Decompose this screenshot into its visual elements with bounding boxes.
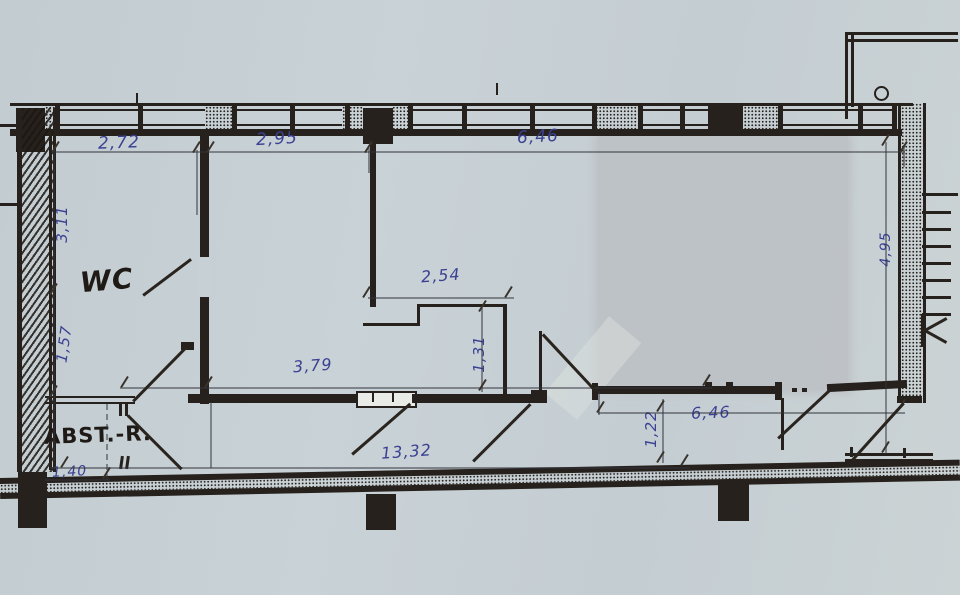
window-segment (780, 109, 895, 126)
dimension-line (598, 412, 905, 414)
window-segment (235, 109, 342, 126)
exterior-pipe-line (851, 33, 854, 107)
door-swing-line (472, 403, 531, 462)
window-segment (58, 109, 205, 126)
wall-dash (802, 388, 807, 392)
dimension-label-bottom-total: 13,32 (380, 440, 432, 462)
bottom-exterior-wall (0, 460, 960, 499)
radiator-tick (922, 245, 951, 248)
circle-mark (874, 86, 889, 101)
mullion-post (345, 104, 350, 134)
dimension-line (53, 151, 55, 461)
mullion-post (462, 104, 467, 134)
threshold-post (850, 447, 853, 457)
top-wall-inner-line (10, 129, 902, 136)
radiator-tick (922, 211, 951, 214)
threshold-post (903, 448, 906, 458)
left-wall-tick (0, 124, 17, 127)
mullion-post (892, 104, 897, 134)
dimension-line (196, 150, 198, 215)
left-wall-inner-face (49, 132, 52, 470)
radiator-tick (922, 313, 951, 316)
mullion-post (55, 104, 60, 134)
wall-stipple (205, 106, 235, 130)
wall-dash (792, 388, 797, 392)
dimension-line (368, 148, 370, 173)
dimension-line (55, 151, 905, 153)
exterior-pipe-line (845, 33, 848, 119)
door-swing-line (132, 346, 187, 402)
mullion-post (708, 104, 713, 134)
dimension-label-mid-width: 2,54 (420, 265, 461, 287)
mullion-post (638, 104, 643, 134)
mid-step-wall (418, 304, 506, 307)
left-wall-tick (0, 203, 17, 206)
door-post (531, 390, 547, 403)
window-segment (410, 109, 595, 126)
concrete-pillar (713, 105, 743, 134)
dimension-line (481, 308, 483, 392)
wall-stipple (740, 106, 780, 130)
concrete-pillar (18, 472, 47, 528)
mullion-post (592, 104, 597, 134)
dimension-label-left-upper: 3,11 (53, 194, 71, 254)
concrete-pillar (363, 108, 393, 144)
exterior-ledge-line (845, 39, 958, 42)
mullion-post (778, 104, 783, 134)
dimension-line (120, 387, 712, 389)
interior-wall (188, 394, 357, 403)
interior-wall (412, 394, 533, 403)
threshold-line (845, 459, 933, 462)
top-wall-tick (496, 83, 498, 95)
wall-opening (198, 257, 211, 297)
door-swing-line (777, 389, 831, 439)
mid-step-wall (363, 323, 419, 326)
room-label-wc: WC (79, 262, 135, 300)
window-segment (640, 109, 713, 126)
k-mark-diagonal (922, 328, 947, 343)
dimension-label-mid-height: 1,31 (470, 324, 488, 384)
mullion-post (858, 104, 863, 134)
scan-shading-patch (598, 136, 848, 390)
mid-partition-wall (370, 131, 376, 307)
wall-stipple (595, 106, 640, 130)
dimension-line (45, 479, 110, 481)
radiator-tick (922, 228, 951, 231)
dimension-line (50, 467, 690, 469)
door-leaf-line (781, 398, 784, 450)
door-leaf-line (539, 331, 542, 391)
hinge-mark (119, 403, 122, 416)
door-swing-line (142, 258, 191, 296)
radiator-tick (922, 193, 958, 196)
mullion-post (530, 104, 535, 134)
dimension-line (210, 402, 212, 468)
radiator-tick (922, 296, 951, 299)
floor-plan-canvas: 2,72 2,95 6,46 2,54 3,79 13,32 6,46 1,40… (0, 0, 960, 595)
mid-step-wall (503, 304, 507, 394)
concrete-pillar (718, 484, 749, 521)
mullion-post (290, 104, 295, 134)
exterior-ledge-line (845, 32, 958, 35)
radiator-tick (922, 279, 951, 282)
mullion-post (232, 104, 237, 134)
mullion-post (680, 104, 685, 134)
mullion-post (138, 104, 143, 134)
dimension-line (885, 142, 887, 454)
dimension-line (368, 297, 514, 299)
concrete-pillar (366, 494, 396, 530)
wall-mark (726, 382, 733, 388)
top-wall-tick (136, 93, 138, 104)
radiator-tick (922, 262, 951, 265)
mullion-post (408, 104, 413, 134)
dimension-label-top-right: 6,46 (517, 126, 560, 148)
dimension-label-mid-lower: 3,79 (292, 355, 333, 377)
